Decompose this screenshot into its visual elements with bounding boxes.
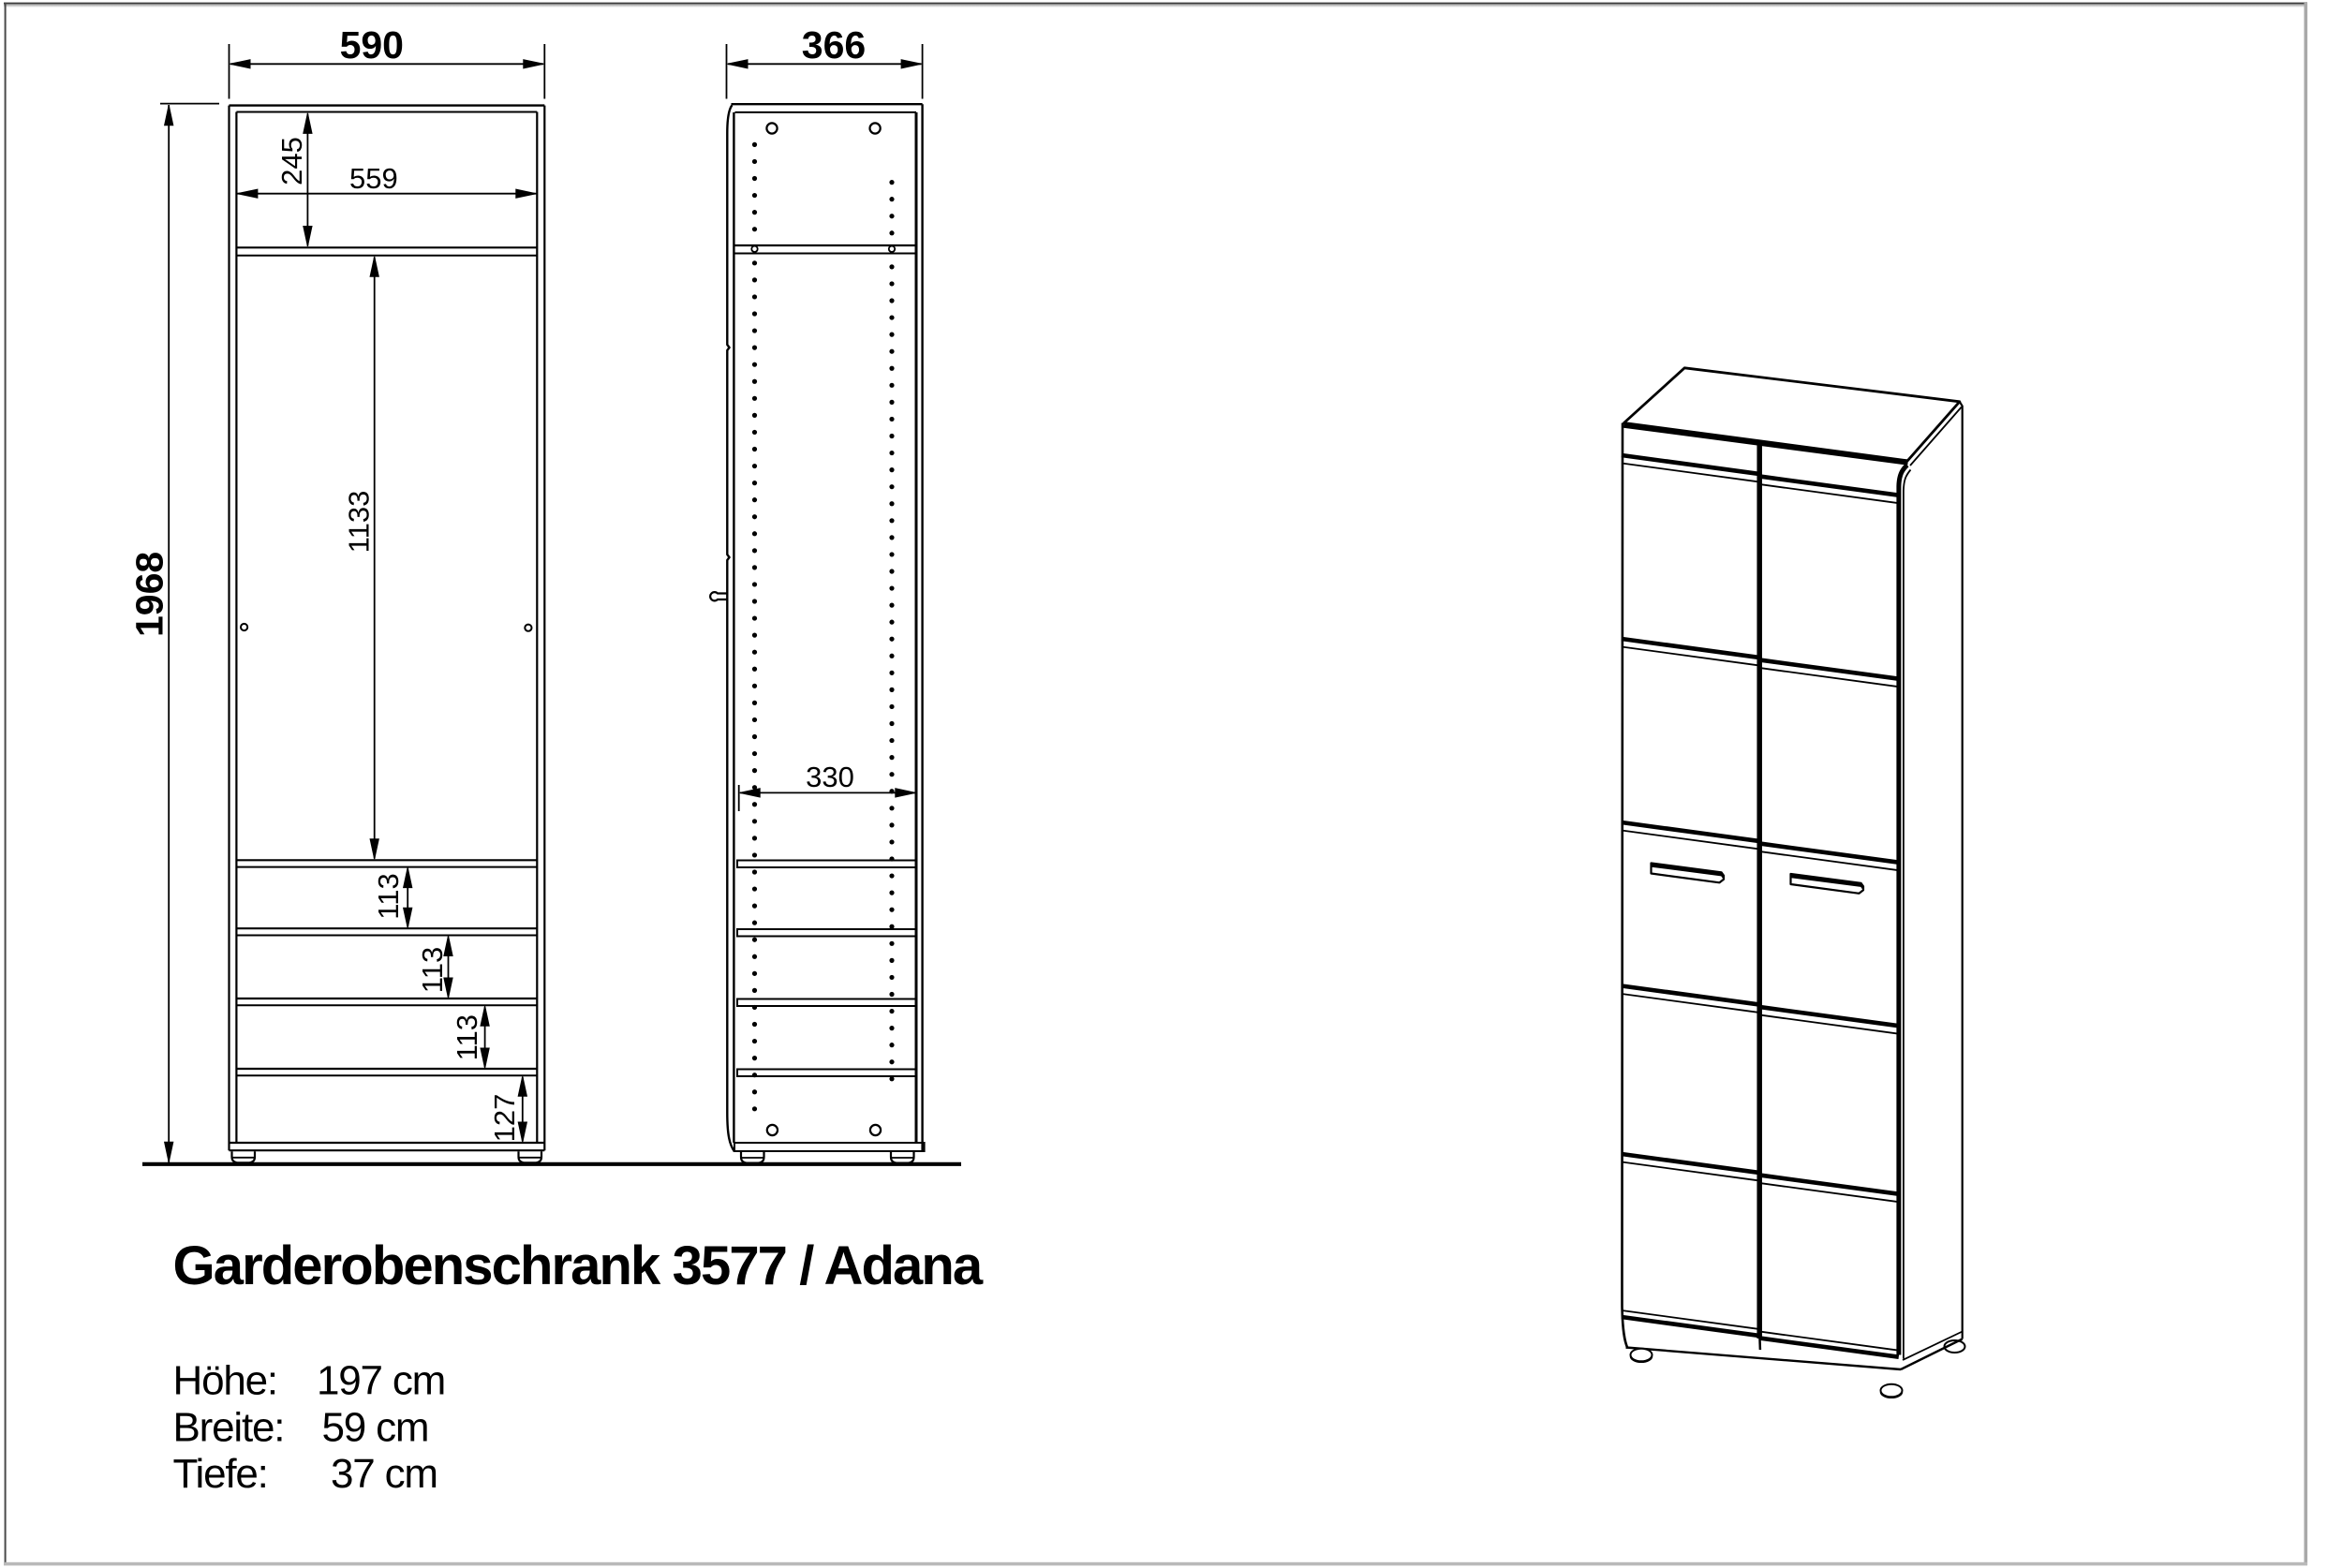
svg-text:590: 590 <box>340 23 404 67</box>
svg-text:1133: 1133 <box>343 491 376 554</box>
svg-text:Garderobenschrank 3577 / Adana: Garderobenschrank 3577 / Adana <box>173 1235 984 1296</box>
svg-text:366: 366 <box>802 23 866 67</box>
svg-text:Höhe:: Höhe: <box>173 1358 277 1404</box>
svg-text:59 cm: 59 cm <box>322 1404 429 1450</box>
svg-text:113: 113 <box>451 1014 483 1060</box>
svg-text:559: 559 <box>349 162 398 195</box>
svg-text:Breite:: Breite: <box>173 1404 285 1450</box>
svg-text:Tiefe:: Tiefe: <box>173 1451 268 1497</box>
svg-text:1968: 1968 <box>128 552 171 637</box>
svg-text:330: 330 <box>806 761 854 793</box>
svg-text:37 cm: 37 cm <box>331 1451 437 1497</box>
svg-text:113: 113 <box>372 873 405 919</box>
svg-text:245: 245 <box>275 137 308 185</box>
svg-text:127: 127 <box>488 1094 521 1143</box>
svg-text:113: 113 <box>416 947 449 993</box>
svg-text:197 cm: 197 cm <box>317 1358 445 1404</box>
